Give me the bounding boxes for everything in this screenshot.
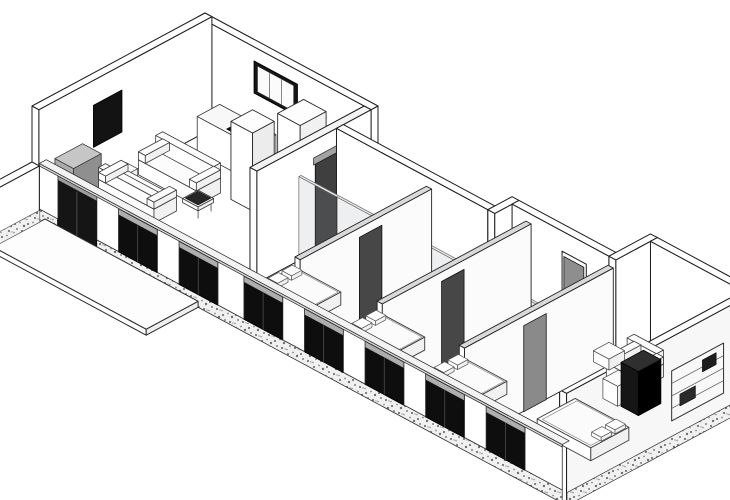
- bedroom-door-3: [524, 314, 546, 412]
- isometric-apartment-cutaway: [0, 0, 730, 500]
- dark-cabinet-right: [621, 350, 661, 415]
- apartment-3d-section-drawing: [0, 0, 730, 500]
